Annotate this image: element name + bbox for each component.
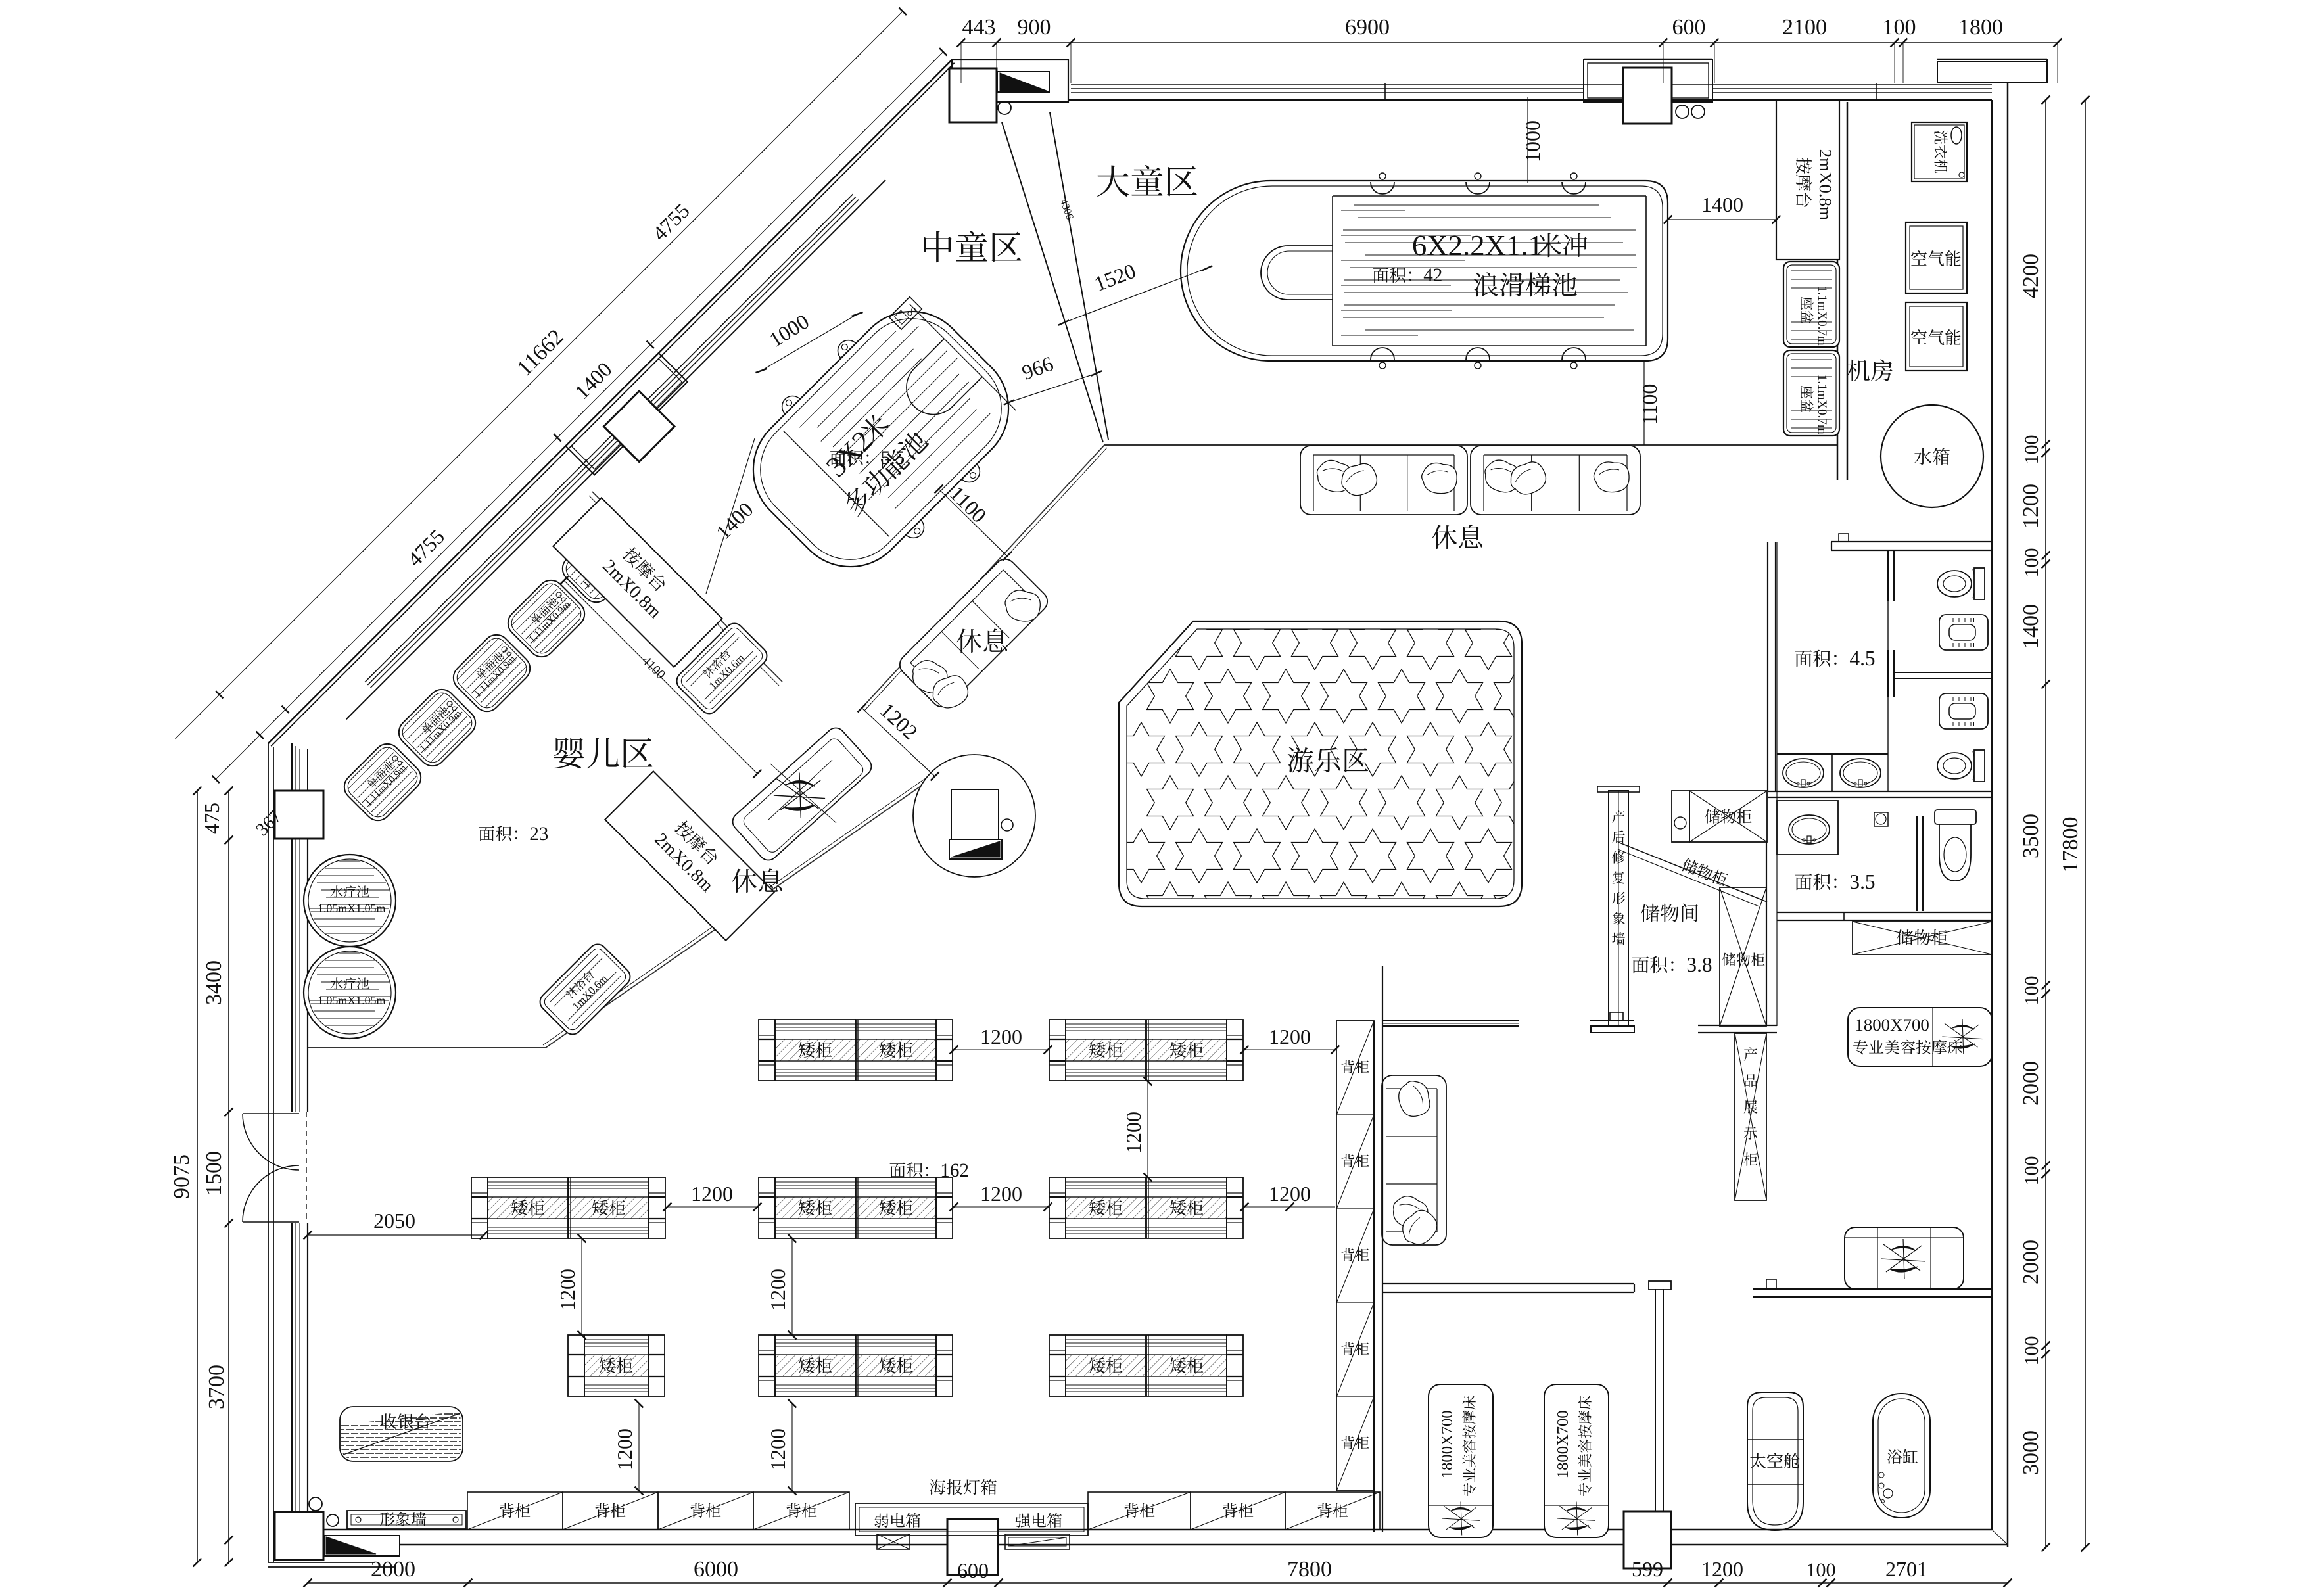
svg-text:475: 475 — [200, 803, 224, 834]
svg-text:1200: 1200 — [613, 1428, 636, 1470]
svg-text:100: 100 — [2021, 548, 2042, 578]
svg-text:1.1mX0.7m: 1.1mX0.7m — [1815, 286, 1829, 346]
svg-text:2050: 2050 — [373, 1209, 415, 1232]
svg-text:162: 162 — [940, 1160, 969, 1181]
svg-text:6000: 6000 — [694, 1557, 738, 1582]
svg-text:599: 599 — [1632, 1557, 1663, 1581]
svg-text:1100: 1100 — [1638, 384, 1661, 425]
svg-text:1200: 1200 — [980, 1182, 1022, 1206]
svg-text:6900: 6900 — [1345, 15, 1390, 39]
svg-text:42: 42 — [1423, 265, 1442, 286]
svg-text:3000: 3000 — [2019, 1430, 2043, 1475]
svg-text:1800X700: 1800X700 — [1554, 1410, 1572, 1478]
svg-text:1400: 1400 — [2019, 604, 2043, 649]
svg-text:3400: 3400 — [202, 960, 226, 1005]
svg-text:600: 600 — [957, 1559, 989, 1582]
svg-text:4200: 4200 — [2019, 254, 2043, 298]
svg-text:1000: 1000 — [1521, 120, 1544, 162]
svg-text:1200: 1200 — [980, 1025, 1022, 1048]
svg-text:900: 900 — [1018, 15, 1051, 39]
svg-text:1800X700: 1800X700 — [1854, 1015, 1929, 1035]
svg-text:1200: 1200 — [1269, 1182, 1311, 1206]
svg-text:100: 100 — [2021, 976, 2042, 1006]
svg-text:1200: 1200 — [555, 1269, 579, 1311]
svg-text:443: 443 — [962, 15, 996, 39]
svg-text:1200: 1200 — [1122, 1112, 1145, 1154]
svg-text:100: 100 — [2021, 1336, 2042, 1366]
svg-text:2000: 2000 — [371, 1557, 415, 1582]
svg-text:100: 100 — [2021, 435, 2042, 465]
svg-text:600: 600 — [1672, 15, 1706, 39]
svg-text:2100: 2100 — [1782, 15, 1827, 39]
svg-text:1200: 1200 — [1269, 1025, 1311, 1048]
svg-text:3500: 3500 — [2019, 814, 2043, 858]
svg-text:2000: 2000 — [2019, 1240, 2043, 1284]
svg-text:6X2.2X1.1: 6X2.2X1.1 — [1412, 229, 1543, 262]
svg-text:3700: 3700 — [204, 1365, 229, 1409]
svg-text:7800: 7800 — [1287, 1557, 1332, 1582]
svg-text:3.8: 3.8 — [1686, 953, 1712, 976]
svg-text:2000: 2000 — [2019, 1061, 2043, 1106]
svg-text:1400: 1400 — [1701, 193, 1743, 216]
svg-text:1800: 1800 — [1958, 15, 2003, 39]
svg-text:3.5: 3.5 — [1849, 870, 1875, 893]
svg-text:17800: 17800 — [2058, 817, 2083, 873]
svg-text:1200: 1200 — [2019, 484, 2043, 528]
svg-text:2701: 2701 — [1885, 1557, 1927, 1581]
svg-text:1500: 1500 — [202, 1151, 226, 1196]
svg-text:23: 23 — [529, 824, 548, 845]
svg-text:9075: 9075 — [170, 1154, 194, 1199]
svg-text:100: 100 — [1806, 1559, 1836, 1581]
svg-text:100: 100 — [1883, 15, 1916, 39]
svg-text:1200: 1200 — [1701, 1557, 1743, 1581]
svg-text:1.1mX0.7m: 1.1mX0.7m — [1815, 375, 1829, 434]
svg-text:1200: 1200 — [766, 1269, 790, 1311]
svg-text:4.5: 4.5 — [1849, 647, 1875, 670]
svg-text:100: 100 — [2021, 1156, 2042, 1186]
svg-text:1200: 1200 — [766, 1428, 790, 1470]
svg-text:1200: 1200 — [691, 1182, 733, 1206]
svg-text:1800X700: 1800X700 — [1438, 1410, 1456, 1478]
svg-text:2mX0.8m: 2mX0.8m — [1816, 149, 1835, 220]
